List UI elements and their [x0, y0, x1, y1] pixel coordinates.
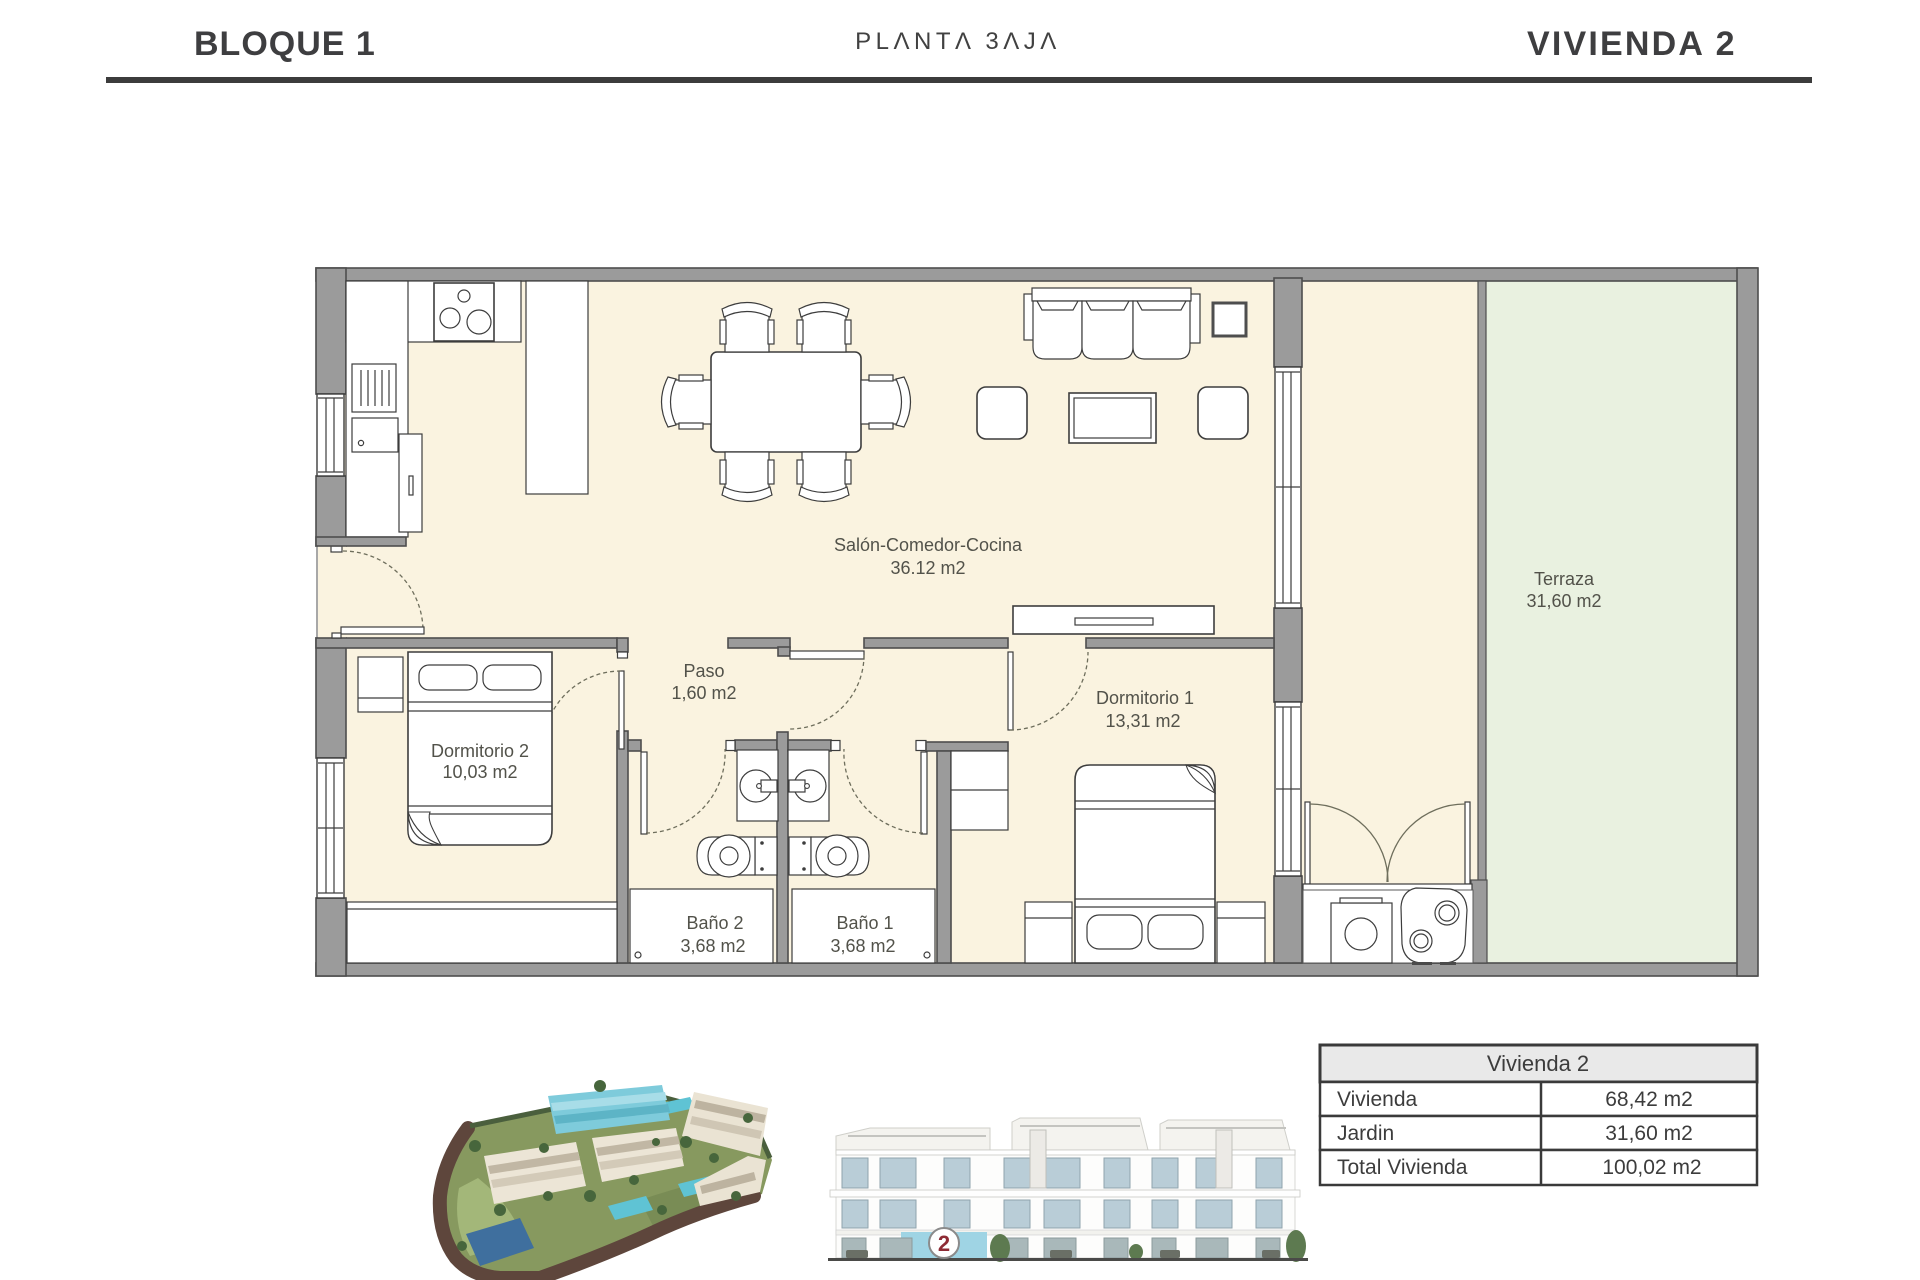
svg-text:Paso: Paso — [683, 661, 724, 681]
svg-text:100,02 m2: 100,02 m2 — [1602, 1156, 1701, 1179]
svg-text:31,60 m2: 31,60 m2 — [1605, 1122, 1693, 1145]
svg-text:PLΛNTΛ 3ΛJΛ: PLΛNTΛ 3ΛJΛ — [855, 28, 1061, 55]
svg-text:1,60 m2: 1,60 m2 — [671, 683, 736, 703]
svg-text:3,68 m2: 3,68 m2 — [830, 936, 895, 956]
svg-text:2: 2 — [938, 1231, 950, 1256]
svg-text:Salón-Comedor-Cocina: Salón-Comedor-Cocina — [834, 535, 1023, 555]
svg-text:31,60 m2: 31,60 m2 — [1526, 591, 1601, 611]
svg-text:3,68 m2: 3,68 m2 — [680, 936, 745, 956]
svg-text:Vivienda 2: Vivienda 2 — [1487, 1051, 1589, 1076]
svg-text:Baño 1: Baño 1 — [836, 913, 893, 933]
svg-text:Dormitorio 2: Dormitorio 2 — [431, 741, 529, 761]
svg-text:VIVIENDA 2: VIVIENDA 2 — [1527, 25, 1737, 63]
svg-text:Total Vivienda: Total Vivienda — [1337, 1156, 1468, 1179]
svg-text:36.12 m2: 36.12 m2 — [890, 558, 965, 578]
svg-text:Dormitorio 1: Dormitorio 1 — [1096, 688, 1194, 708]
svg-text:13,31 m2: 13,31 m2 — [1105, 711, 1180, 731]
svg-text:Baño 2: Baño 2 — [686, 913, 743, 933]
svg-text:Terraza: Terraza — [1534, 569, 1595, 589]
svg-text:Jardin: Jardin — [1337, 1122, 1394, 1145]
svg-text:Vivienda: Vivienda — [1337, 1088, 1417, 1111]
svg-text:10,03 m2: 10,03 m2 — [442, 762, 517, 782]
svg-text:BLOQUE 1: BLOQUE 1 — [194, 25, 376, 63]
svg-text:68,42 m2: 68,42 m2 — [1605, 1088, 1693, 1111]
